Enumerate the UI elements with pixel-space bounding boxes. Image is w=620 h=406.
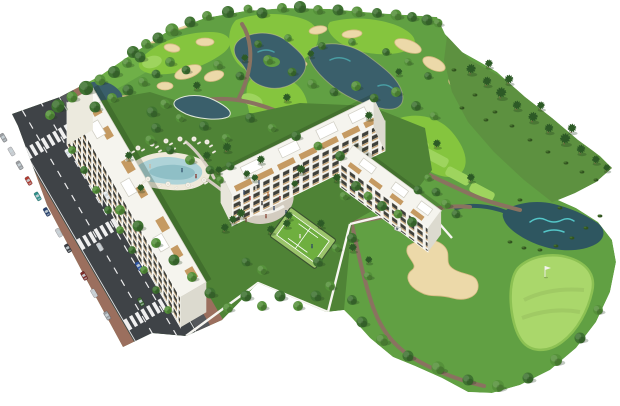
terrain [0,8,616,393]
aerial-render [0,0,620,406]
resort-illustration [0,0,620,406]
